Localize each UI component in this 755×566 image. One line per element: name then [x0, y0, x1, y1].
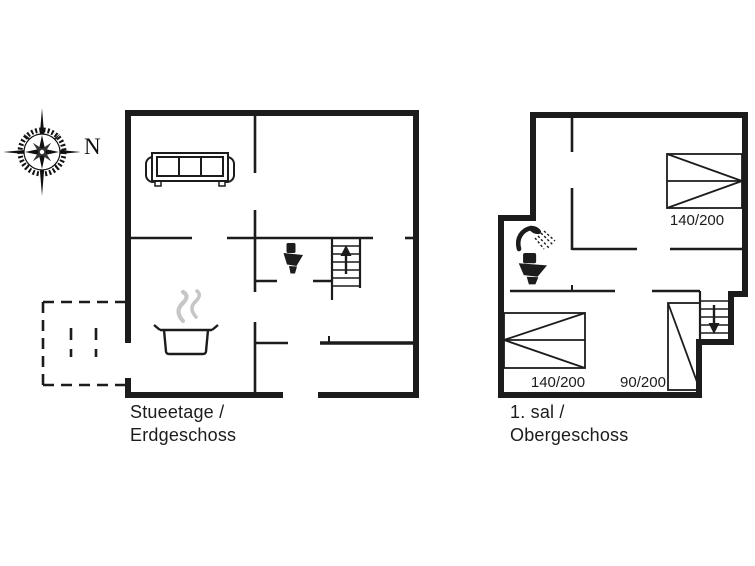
ground-floor-caption: Stueetage / Erdgeschoss	[130, 401, 236, 447]
ground-floor-plan	[35, 105, 425, 405]
terrace-dashed-outline	[43, 302, 125, 385]
staircase-down-icon	[700, 291, 728, 345]
upper-floor-caption-line1: 1. sal /	[510, 401, 628, 424]
floor-plan-page: N	[0, 0, 755, 566]
sofa-icon	[146, 153, 234, 186]
bed-size-label-bottom-left: 140/200	[521, 374, 595, 391]
shower-icon	[518, 224, 555, 249]
staircase-up-icon	[332, 238, 360, 300]
upper-floor-plan	[485, 105, 755, 405]
upper-floor-caption-line2: Obergeschoss	[510, 424, 628, 447]
ground-floor-caption-line1: Stueetage /	[130, 401, 236, 424]
upper-floor-caption: 1. sal / Obergeschoss	[510, 401, 628, 447]
ground-floor-caption-line2: Erdgeschoss	[130, 424, 236, 447]
bed-size-label-top-right: 140/200	[661, 212, 733, 229]
upper-floor-inner-walls	[510, 118, 742, 291]
steam-icon	[179, 291, 200, 321]
bed-size-label-bottom-right: 90/200	[606, 374, 680, 391]
cooking-pot-icon	[154, 291, 218, 354]
bed-bottom-left	[504, 313, 585, 368]
bed-top-right	[667, 154, 742, 208]
toilet-icon	[519, 253, 547, 284]
toilet-icon	[284, 243, 304, 274]
